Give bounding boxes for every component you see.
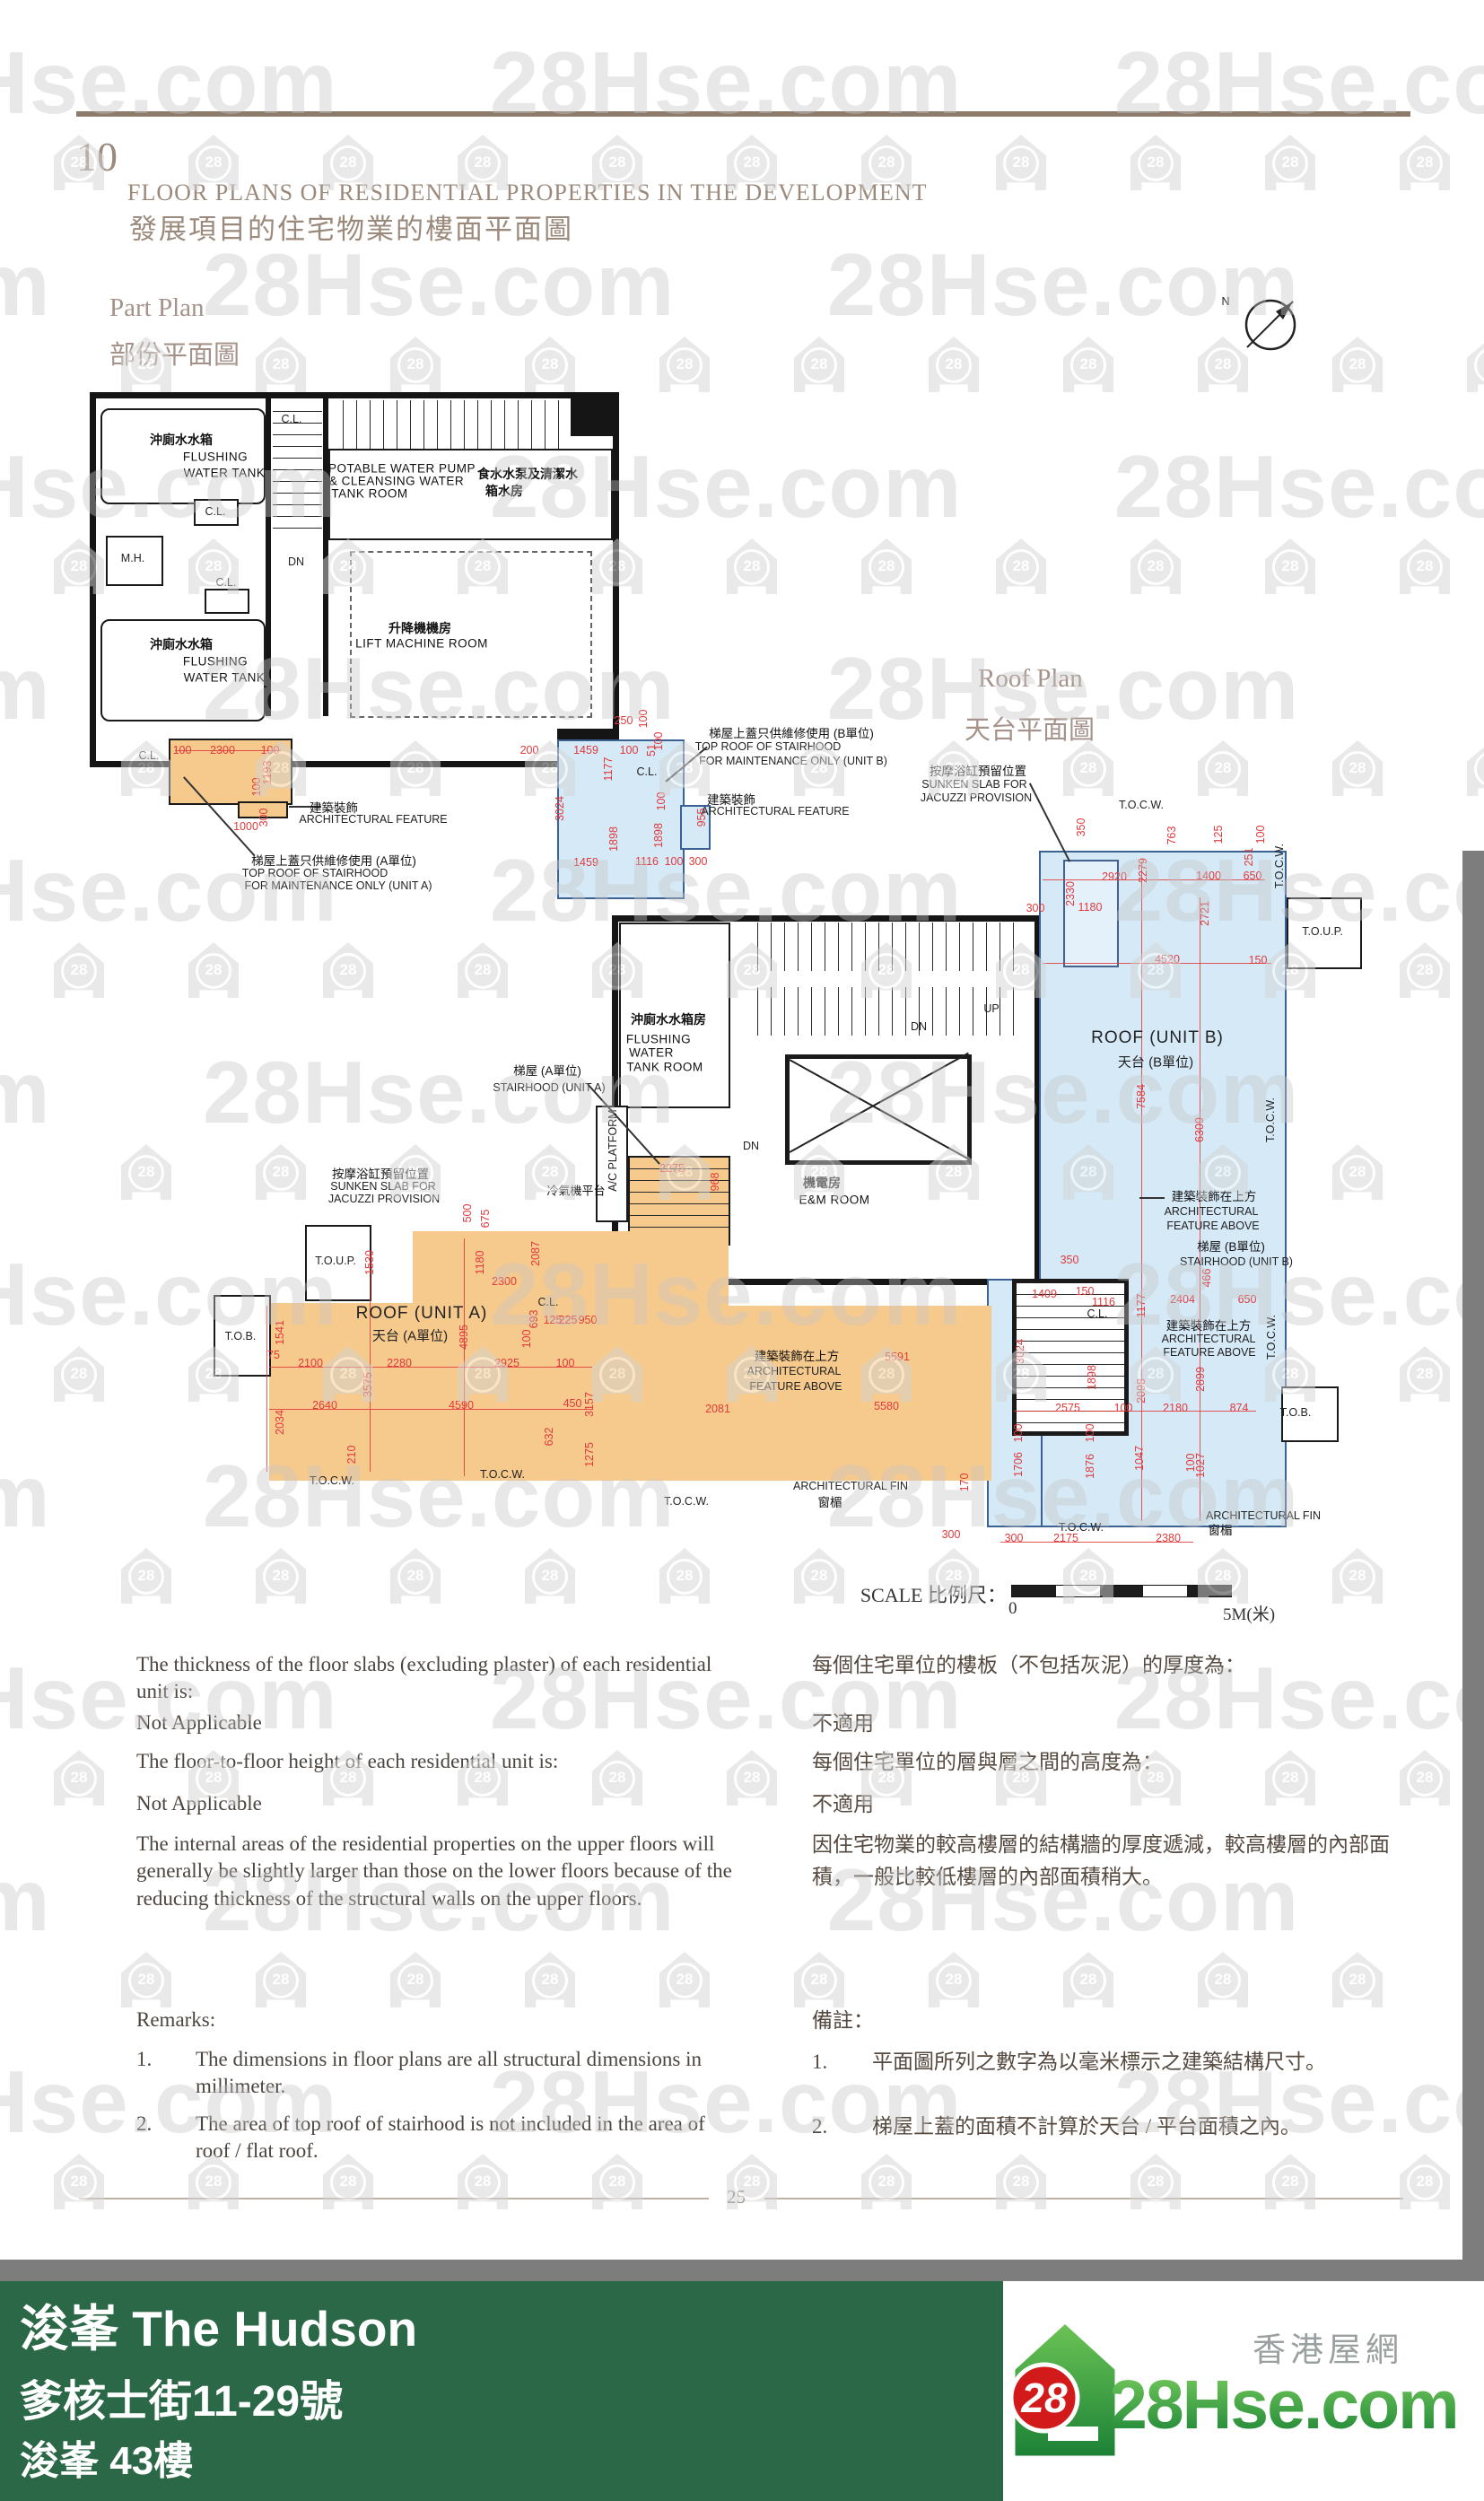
footer-floor: 浚峯 43樓 xyxy=(20,2428,193,2486)
footer-address: 爹核士街11-29號 xyxy=(20,2365,343,2428)
footer-logo-text: 28Hse.com xyxy=(1109,2365,1458,2445)
logo-house-icon: 28 xyxy=(1010,2319,1120,2461)
divider-band xyxy=(0,2260,1484,2281)
footer-site-name: 香港屋網 xyxy=(1253,2322,1403,2371)
page: N沖廁水水箱FLUSHINGWATER TANKC.L.C.L.M.H.C.L.… xyxy=(0,0,1484,2501)
svg-text:28: 28 xyxy=(1020,2374,1068,2421)
footer-project-name: 浚峯 The Hudson xyxy=(20,2288,417,2360)
page-edge-strip xyxy=(1462,851,1484,2260)
